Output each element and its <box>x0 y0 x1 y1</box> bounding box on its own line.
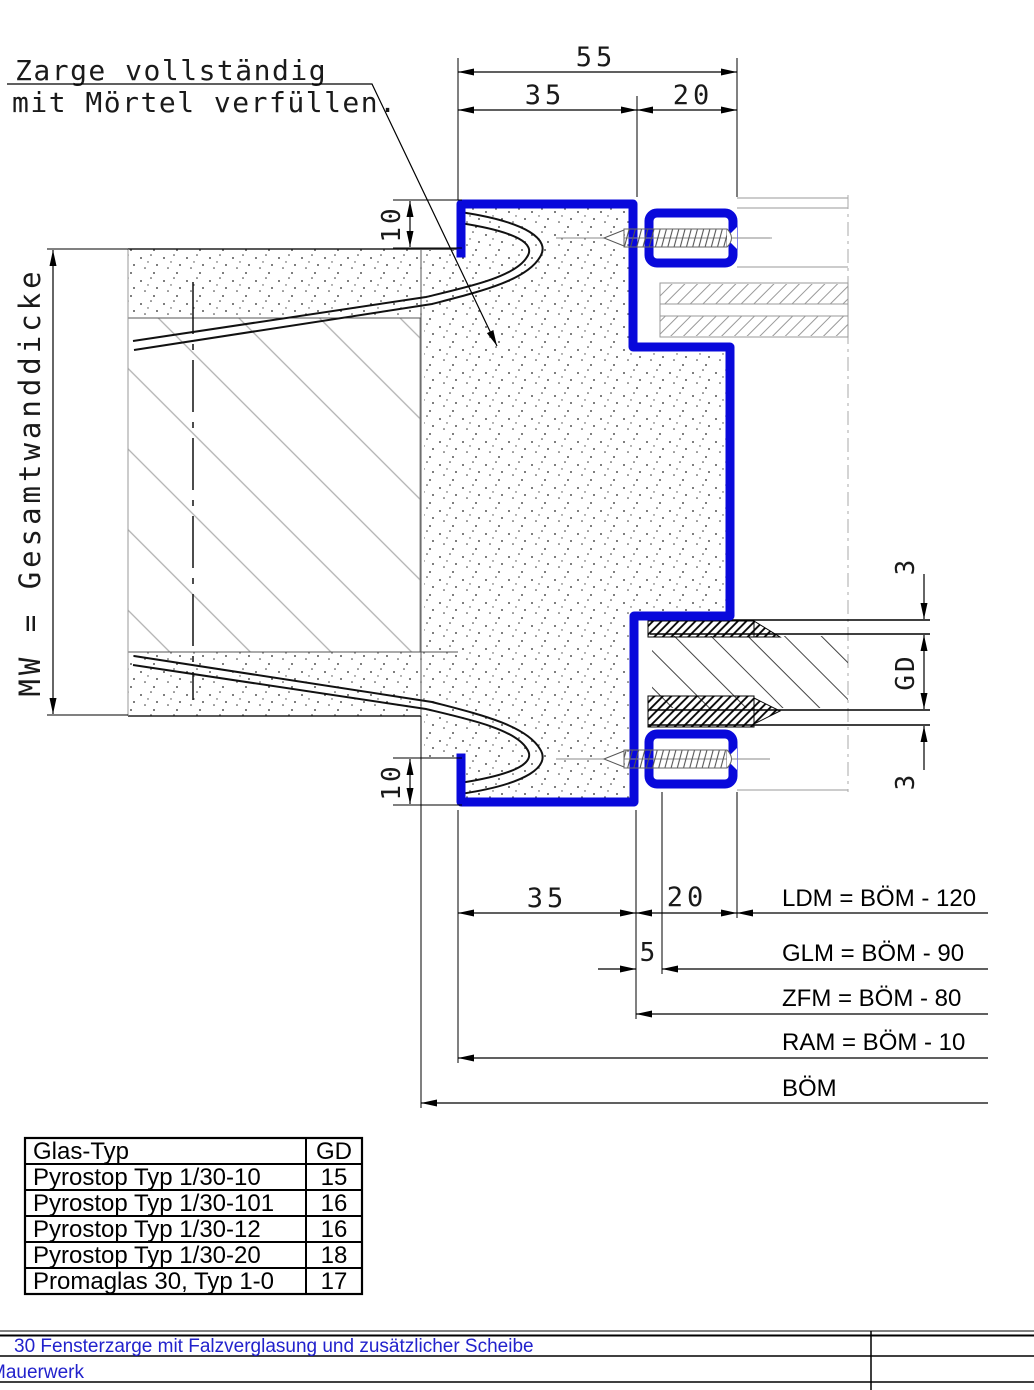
dim-10-top: 10 <box>377 205 407 242</box>
formula-boem: BÖM <box>782 1075 837 1102</box>
dim-flange-bottom: 10 <box>377 758 462 805</box>
table-cell: 16 <box>321 1190 348 1217</box>
mortar-note-line1: Zarge vollständig <box>15 54 327 87</box>
formula-ram: RAM = BÖM - 10 <box>782 1029 965 1056</box>
title-row1: 30 Fensterzarge mit Falzverglasung und z… <box>14 1336 534 1357</box>
glazing <box>648 620 930 727</box>
drawing-page: Zarge vollständig mit Mörtel verfüllen. … <box>0 0 1034 1390</box>
dim-20-bottom: 20 <box>667 882 708 913</box>
table-header-glas-typ: Glas-Typ <box>33 1138 129 1165</box>
technical-drawing: Zarge vollständig mit Mörtel verfüllen. … <box>0 0 1034 1390</box>
masonry-hatch <box>128 318 420 652</box>
table-cell: Pyrostop Typ 1/30-20 <box>33 1242 261 1269</box>
dim-55: 55 <box>576 42 617 73</box>
glass-type-table: Glas-Typ GD Pyrostop Typ 1/30-10 15 Pyro… <box>25 1138 362 1295</box>
formula-zfm: ZFM = BÖM - 80 <box>782 985 961 1012</box>
table-cell: 17 <box>321 1268 348 1295</box>
dim-mw-label: MW = Gesamtwanddicke <box>13 267 47 696</box>
table-cell: Pyrostop Typ 1/30-10 <box>33 1164 261 1191</box>
dim-20-top: 20 <box>673 80 714 111</box>
table-cell: 18 <box>321 1242 348 1269</box>
table-cell: 16 <box>321 1216 348 1243</box>
mortar-note-line2: mit Mörtel verfüllen. <box>12 86 398 119</box>
dim-35-bottom: 35 <box>527 883 568 914</box>
dim-35-top: 35 <box>525 80 566 111</box>
glazing-seal-top <box>648 621 780 637</box>
dim-5: 5 <box>640 938 659 968</box>
additional-pane <box>660 283 848 337</box>
formula-glm: GLM = BÖM - 90 <box>782 940 964 967</box>
table-cell: Pyrostop Typ 1/30-12 <box>33 1216 261 1243</box>
dim-3-top: 3 <box>891 557 921 576</box>
table-header-gd: GD <box>316 1138 352 1165</box>
dim-top: 55 35 20 <box>458 42 737 200</box>
table-cell: Pyrostop Typ 1/30-101 <box>33 1190 274 1217</box>
dim-10-bottom: 10 <box>377 763 407 800</box>
dim-wall: MW = Gesamtwanddicke <box>13 249 128 715</box>
glazing-seal-bottom <box>648 696 780 727</box>
table-cell: 15 <box>321 1164 348 1191</box>
formula-ldm: LDM = BÖM - 120 <box>782 885 976 912</box>
dim-flange-top: 10 <box>377 200 462 248</box>
title-block: 30 Fensterzarge mit Falzverglasung und z… <box>0 1331 1034 1390</box>
dim-glass: 3 GD 3 <box>891 557 928 791</box>
dim-3-bottom: 3 <box>891 772 921 791</box>
title-row2: Mauerwerk <box>0 1362 84 1383</box>
dim-gd: GD <box>891 653 921 690</box>
table-cell: Promaglas 30, Typ 1-0 <box>33 1268 274 1295</box>
